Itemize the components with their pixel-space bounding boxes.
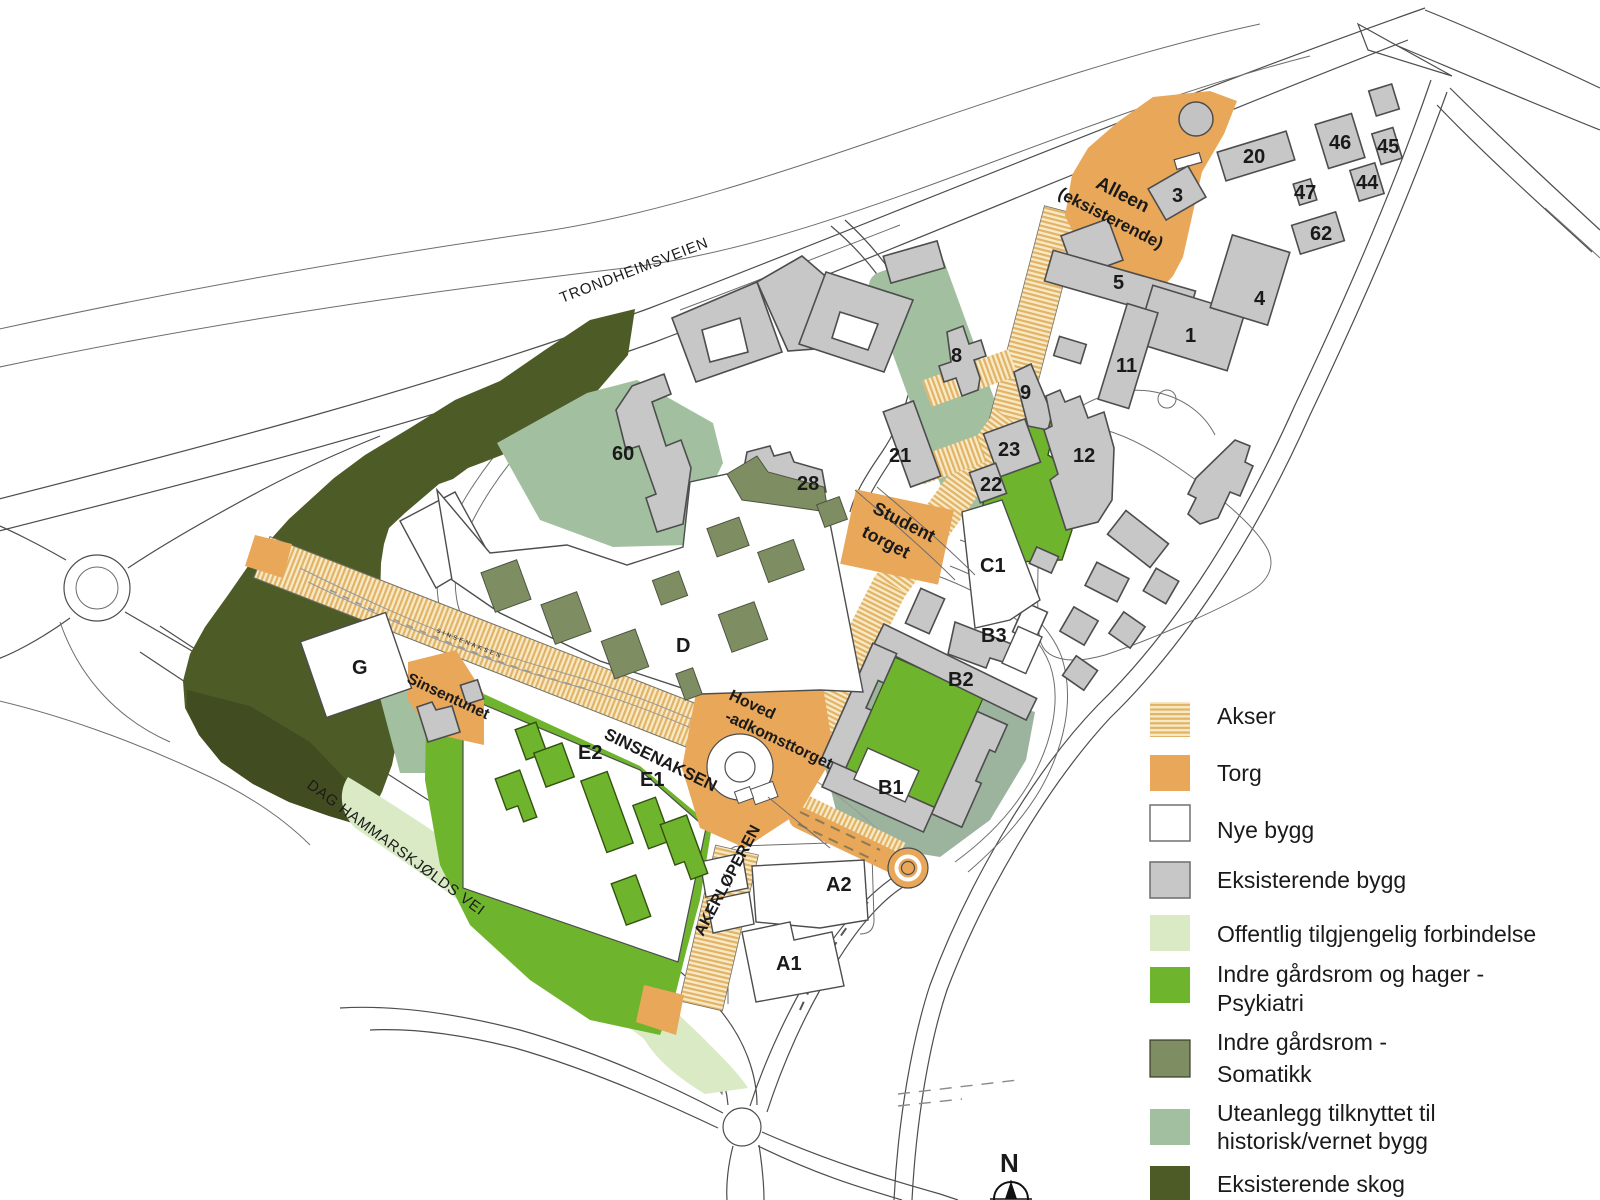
svg-text:A1: A1 [776, 953, 802, 975]
svg-text:62: 62 [1310, 223, 1332, 245]
svg-text:Torg: Torg [1217, 760, 1262, 786]
svg-text:historisk/vernet bygg: historisk/vernet bygg [1217, 1128, 1428, 1154]
svg-text:Indre gårdsrom og hager -: Indre gårdsrom og hager - [1217, 961, 1484, 987]
svg-text:N: N [1000, 1148, 1019, 1178]
svg-text:11: 11 [1116, 355, 1137, 377]
svg-text:28: 28 [797, 473, 819, 495]
svg-text:C1: C1 [980, 555, 1006, 577]
svg-text:Indre gårdsrom -: Indre gårdsrom - [1217, 1029, 1387, 1055]
svg-text:1: 1 [1185, 325, 1196, 347]
svg-text:20: 20 [1243, 146, 1265, 168]
svg-text:B1: B1 [878, 777, 904, 799]
svg-text:Eksisterende bygg: Eksisterende bygg [1217, 867, 1406, 893]
svg-text:Offentlig tilgjengelig forbind: Offentlig tilgjengelig forbindelse [1217, 921, 1536, 947]
svg-text:D: D [676, 635, 690, 657]
svg-text:47: 47 [1294, 182, 1316, 204]
svg-text:46: 46 [1329, 132, 1351, 154]
svg-text:23: 23 [998, 439, 1020, 461]
svg-text:4: 4 [1254, 288, 1266, 310]
svg-text:44: 44 [1356, 172, 1379, 194]
svg-text:E1: E1 [640, 769, 664, 791]
svg-text:60: 60 [612, 443, 634, 465]
svg-text:Psykiatri: Psykiatri [1217, 990, 1304, 1016]
svg-text:45: 45 [1377, 136, 1399, 158]
svg-text:8: 8 [951, 345, 962, 367]
svg-text:Eksisterende skog: Eksisterende skog [1217, 1171, 1405, 1197]
svg-text:A2: A2 [826, 874, 852, 896]
svg-text:12: 12 [1073, 445, 1095, 467]
svg-text:21: 21 [889, 445, 911, 467]
svg-text:B3: B3 [981, 625, 1007, 647]
svg-text:22: 22 [980, 474, 1002, 496]
svg-text:Somatikk: Somatikk [1217, 1061, 1312, 1087]
svg-text:3: 3 [1172, 185, 1183, 207]
svg-text:Nye bygg: Nye bygg [1217, 817, 1314, 843]
svg-text:9: 9 [1020, 382, 1031, 404]
svg-text:Akser: Akser [1217, 703, 1276, 729]
svg-text:B2: B2 [948, 669, 974, 691]
svg-text:5: 5 [1113, 272, 1124, 294]
svg-text:E2: E2 [578, 742, 602, 764]
svg-text:G: G [352, 657, 368, 679]
svg-text:Uteanlegg tilknyttet til: Uteanlegg tilknyttet til [1217, 1100, 1436, 1126]
